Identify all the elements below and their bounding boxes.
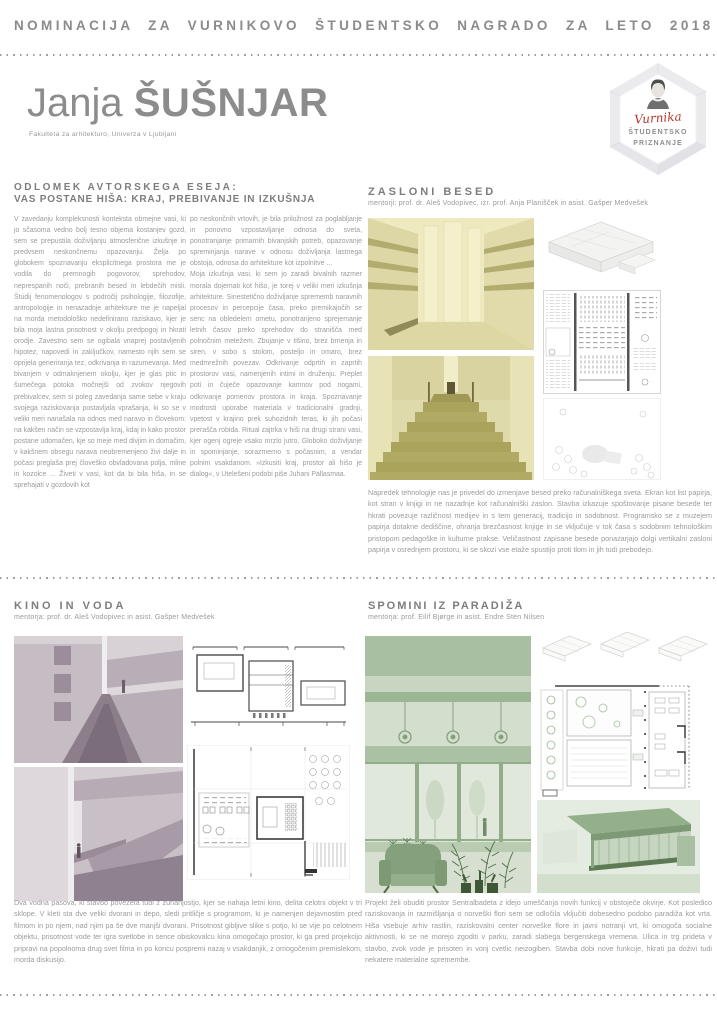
project-mentors-spomini-iz-paradiza: mentorja: prof. Eilif Bjørge in asist. E… (368, 614, 544, 621)
page-title: NOMINACIJA ZA VURNIKOVO ŠTUDENTSKO NAGRA… (14, 18, 711, 33)
author-name: Janja ŠUŠNJAR (27, 82, 328, 124)
axonometric-drawing-zasloni (543, 216, 663, 286)
interior-ramp-render (14, 767, 183, 901)
interior-paper-screens-render (368, 218, 534, 350)
essay-heading-line2: VAS POSTANE HIŠA: KRAJ, PREBIVANJE IN IZ… (14, 194, 315, 206)
floor-plan-drawing-zasloni (543, 290, 661, 394)
section-drawing-kino (187, 641, 350, 730)
author-first-name: Janja (27, 81, 123, 125)
essay-heading: ODLOMEK AVTORSKEGA ESEJA: VAS POSTANE HI… (14, 182, 315, 205)
grand-staircase-render (368, 356, 534, 480)
site-plan-drawing-zasloni (543, 398, 661, 480)
essay-paragraph: V zavedanju kompleksnosti konteksta obme… (14, 214, 186, 491)
project-title-spomini-iz-paradiza: SPOMINI IZ PARADIŽA (368, 600, 524, 612)
essay-paragraph: po neskončnih vrtovih, je bila priložnos… (190, 214, 362, 269)
vurnik-portrait-icon (643, 77, 673, 109)
essay-heading-line1: ODLOMEK AVTORSKEGA ESEJA: (14, 182, 315, 194)
winter-garden-interior-render (365, 636, 531, 893)
vurnik-signature: Vurnika (602, 107, 715, 129)
project-description-spomini-iz-paradiza: Projekt želi obuditi prostor Sentralbade… (365, 897, 712, 965)
floor-plan-drawing-spomini (537, 682, 700, 798)
project-mentors-zasloni-besed: mentorji: prof. dr. Aleš Vodopivec, izr.… (368, 200, 648, 207)
badge-priznanje-label: PRIZNANJE (602, 140, 714, 147)
exterior-building-render (537, 800, 700, 893)
project-title-kino-in-voda: KINO IN VODA (14, 600, 126, 612)
project-title-zasloni-besed: ZASLONI BESED (368, 186, 496, 198)
essay-column-1: V zavedanju kompleksnosti konteksta obme… (14, 214, 186, 491)
project-description-zasloni-besed: Napredek tehnologije nas je privedel do … (368, 487, 712, 555)
corridor-water-render (14, 636, 183, 763)
essay-paragraph: Moja izkušnja vasi, ki sem jo zaradi biv… (190, 269, 362, 480)
floor-plan-drawing-kino (187, 745, 350, 880)
author-affiliation: Fakulteta za arhitekturo, Univerza v Lju… (29, 131, 177, 138)
dotted-divider-top (0, 54, 717, 56)
badge-content: Vurnika ŠTUDENTSKO PRIZNANJE (602, 60, 714, 178)
nomination-poster: NOMINACIJA ZA VURNIKOVO ŠTUDENTSKO NAGRA… (0, 0, 717, 1024)
author-last-name: ŠUŠNJAR (134, 81, 329, 125)
dotted-divider-bottom (0, 994, 717, 996)
axonometric-drawings-spomini (537, 624, 713, 664)
project-description-kino-in-voda: Dva vodna pasova, ki stavbo povežeta tud… (14, 897, 362, 965)
award-badge: Vurnika ŠTUDENTSKO PRIZNANJE (602, 60, 714, 178)
dotted-divider-middle (0, 577, 717, 579)
project-mentors-kino-in-voda: mentorja: prof. dr. Aleš Vodopivec in as… (14, 614, 215, 621)
badge-studentsko-label: ŠTUDENTSKO (602, 129, 714, 136)
essay-column-2: po neskončnih vrtovih, je bila priložnos… (190, 214, 362, 480)
